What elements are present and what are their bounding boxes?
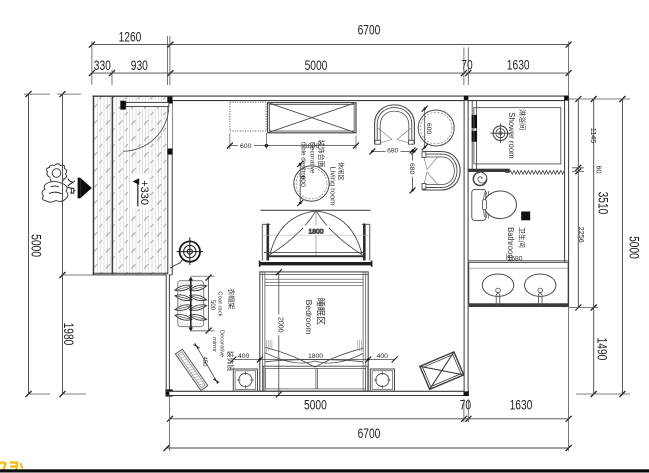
svg-text:Shower room: Shower room [507,112,516,158]
svg-text:600: 600 [425,123,432,135]
svg-text:+330: +330 [138,180,150,205]
svg-text:930: 930 [131,58,148,73]
svg-text:6700: 6700 [358,426,381,441]
svg-text:5000: 5000 [627,236,642,259]
svg-text:Decorative: Decorative [219,330,225,357]
svg-text:60: 60 [595,166,604,174]
svg-text:1260: 1260 [119,30,142,45]
svg-text:5000: 5000 [305,58,328,73]
svg-text:装饰台面: 装饰台面 [317,140,326,168]
svg-text:Coat rack: Coat rack [216,291,222,316]
svg-text:70: 70 [460,398,471,413]
svg-text:淋浴间: 淋浴间 [518,109,527,130]
svg-text:卫生间: 卫生间 [517,227,526,248]
svg-text:睡眠区: 睡眠区 [316,298,327,326]
svg-text:2000: 2000 [277,317,284,333]
svg-text:Living room: Living room [329,167,338,206]
svg-text:6700: 6700 [358,22,381,37]
svg-text:1490: 1490 [594,338,609,361]
svg-text:70: 70 [461,58,472,73]
svg-text:3510: 3510 [596,192,611,215]
svg-text:600: 600 [299,176,306,188]
svg-text:mirror: mirror [211,337,217,352]
svg-text:400: 400 [377,353,389,360]
svg-text:680: 680 [387,148,399,155]
svg-text:1980: 1980 [61,323,76,346]
svg-text:400: 400 [238,353,250,360]
svg-text:入户: 入户 [66,177,76,194]
svg-text:1630: 1630 [510,398,533,413]
svg-text:Bedroom: Bedroom [304,300,314,335]
svg-text:330: 330 [94,58,111,73]
svg-text:1800: 1800 [308,353,323,360]
svg-text:2256: 2256 [577,227,586,243]
svg-text:5000: 5000 [29,234,44,257]
svg-text:1630: 1630 [507,58,530,73]
svg-text:500: 500 [209,300,215,311]
svg-text:1800: 1800 [308,228,323,235]
svg-text:600: 600 [240,143,252,150]
svg-text:Decorative: Decorative [309,142,316,174]
svg-text:装饰镜: 装饰镜 [226,351,235,372]
svg-text:衣帽架: 衣帽架 [227,288,236,309]
svg-text:5000: 5000 [304,398,327,413]
svg-text:680: 680 [408,163,415,175]
svg-text:450: 450 [201,356,207,367]
